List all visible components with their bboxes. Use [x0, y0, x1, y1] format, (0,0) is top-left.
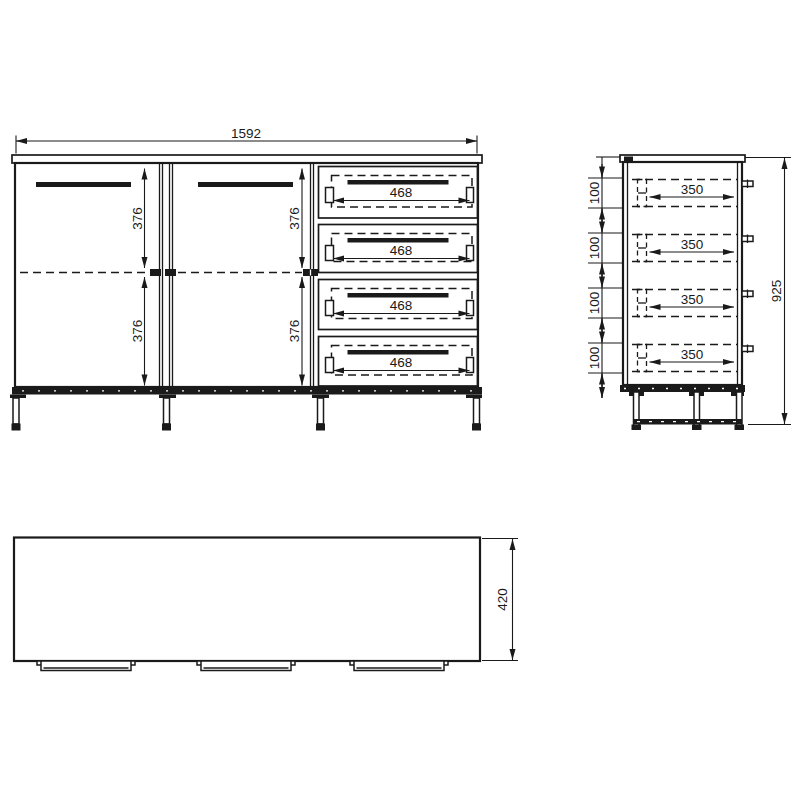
dim-spacing-chain: 100 100 100 100	[587, 157, 624, 398]
dim-left-door: 376 376	[130, 169, 145, 386]
dim-right-door: 376 376	[287, 169, 302, 386]
leg-foot	[692, 425, 702, 431]
leg-foot	[735, 425, 745, 431]
drawer-slide-left	[326, 301, 334, 316]
leg-foot	[316, 424, 325, 431]
top-handle-1	[37, 661, 135, 671]
handle-bar	[201, 661, 291, 671]
leg	[318, 398, 324, 424]
leg-foot	[632, 425, 642, 431]
dim-label-left-door-lower: 376	[130, 320, 145, 343]
top-panel	[12, 155, 482, 163]
dim-label-spacing-4: 100	[587, 347, 602, 370]
drawer-slide-left	[326, 246, 334, 261]
technical-drawing-canvas: 1592 376	[0, 0, 800, 800]
top-handle-3	[350, 661, 448, 671]
left-door-handle	[36, 182, 131, 187]
leg	[474, 398, 480, 424]
side-drawer-3: 350	[632, 290, 753, 317]
leg-foot	[12, 424, 21, 431]
leg	[164, 398, 170, 424]
catch-block	[165, 269, 176, 276]
side-view: 350 350 350	[587, 155, 791, 430]
right-door-handle	[198, 182, 293, 187]
leg	[13, 398, 19, 424]
drawer-1: 468	[319, 167, 478, 219]
dim-label-drawer-1-width: 468	[390, 185, 413, 200]
dim-label-spacing-2: 100	[587, 237, 602, 260]
drawer-handle	[348, 350, 449, 355]
dim-label-right-door-lower: 376	[287, 320, 302, 343]
dim-label-overall-height: 925	[769, 280, 784, 303]
dim-label-spacing-1: 100	[587, 182, 602, 205]
leg-foot	[162, 424, 171, 431]
drawer-handle	[348, 238, 449, 243]
dim-label-drawer-2-width: 468	[390, 243, 413, 258]
front-base	[10, 387, 482, 431]
dim-label-drawer-2-depth: 350	[681, 237, 704, 252]
side-base	[620, 385, 745, 430]
drawer-handle	[348, 180, 449, 185]
handle-bar	[41, 661, 131, 671]
top-panel-block	[624, 157, 633, 162]
handle-bar	[354, 661, 444, 671]
drawer-4: 468	[319, 337, 478, 387]
dim-label-drawer-3-width: 468	[390, 298, 413, 313]
drawer-slide-left	[326, 358, 334, 373]
furniture-dimension-drawing: 1592 376	[0, 0, 800, 800]
dim-label-drawer-4-depth: 350	[681, 347, 704, 362]
dim-label-drawer-3-depth: 350	[681, 292, 704, 307]
top-outline	[14, 538, 480, 662]
drawer-slide-left	[326, 188, 334, 203]
front-view: 1592 376	[10, 126, 482, 431]
dim-depth: 420	[482, 539, 518, 661]
top-handle-2	[197, 661, 295, 671]
dim-label-spacing-3: 100	[587, 292, 602, 315]
drawer-2: 468	[319, 225, 478, 273]
dim-overall-width: 1592	[16, 126, 477, 154]
dim-label-left-door-upper: 376	[130, 207, 145, 230]
leg-foot	[472, 424, 481, 431]
side-drawer-2: 350	[632, 235, 753, 262]
dim-label-right-door-upper: 376	[287, 207, 302, 230]
side-drawer-1: 350	[632, 180, 753, 207]
dim-label-overall-width: 1592	[231, 126, 261, 141]
catch-block	[150, 269, 161, 276]
top-view: 420	[14, 538, 518, 671]
hidden-shelf-line	[20, 269, 318, 276]
drawer-handle	[348, 293, 449, 298]
side-drawer-4: 350	[632, 345, 753, 372]
dim-label-depth: 420	[495, 588, 510, 611]
dim-label-drawer-1-depth: 350	[681, 182, 704, 197]
drawer-3: 468	[319, 280, 478, 330]
dim-label-drawer-4-width: 468	[390, 355, 413, 370]
